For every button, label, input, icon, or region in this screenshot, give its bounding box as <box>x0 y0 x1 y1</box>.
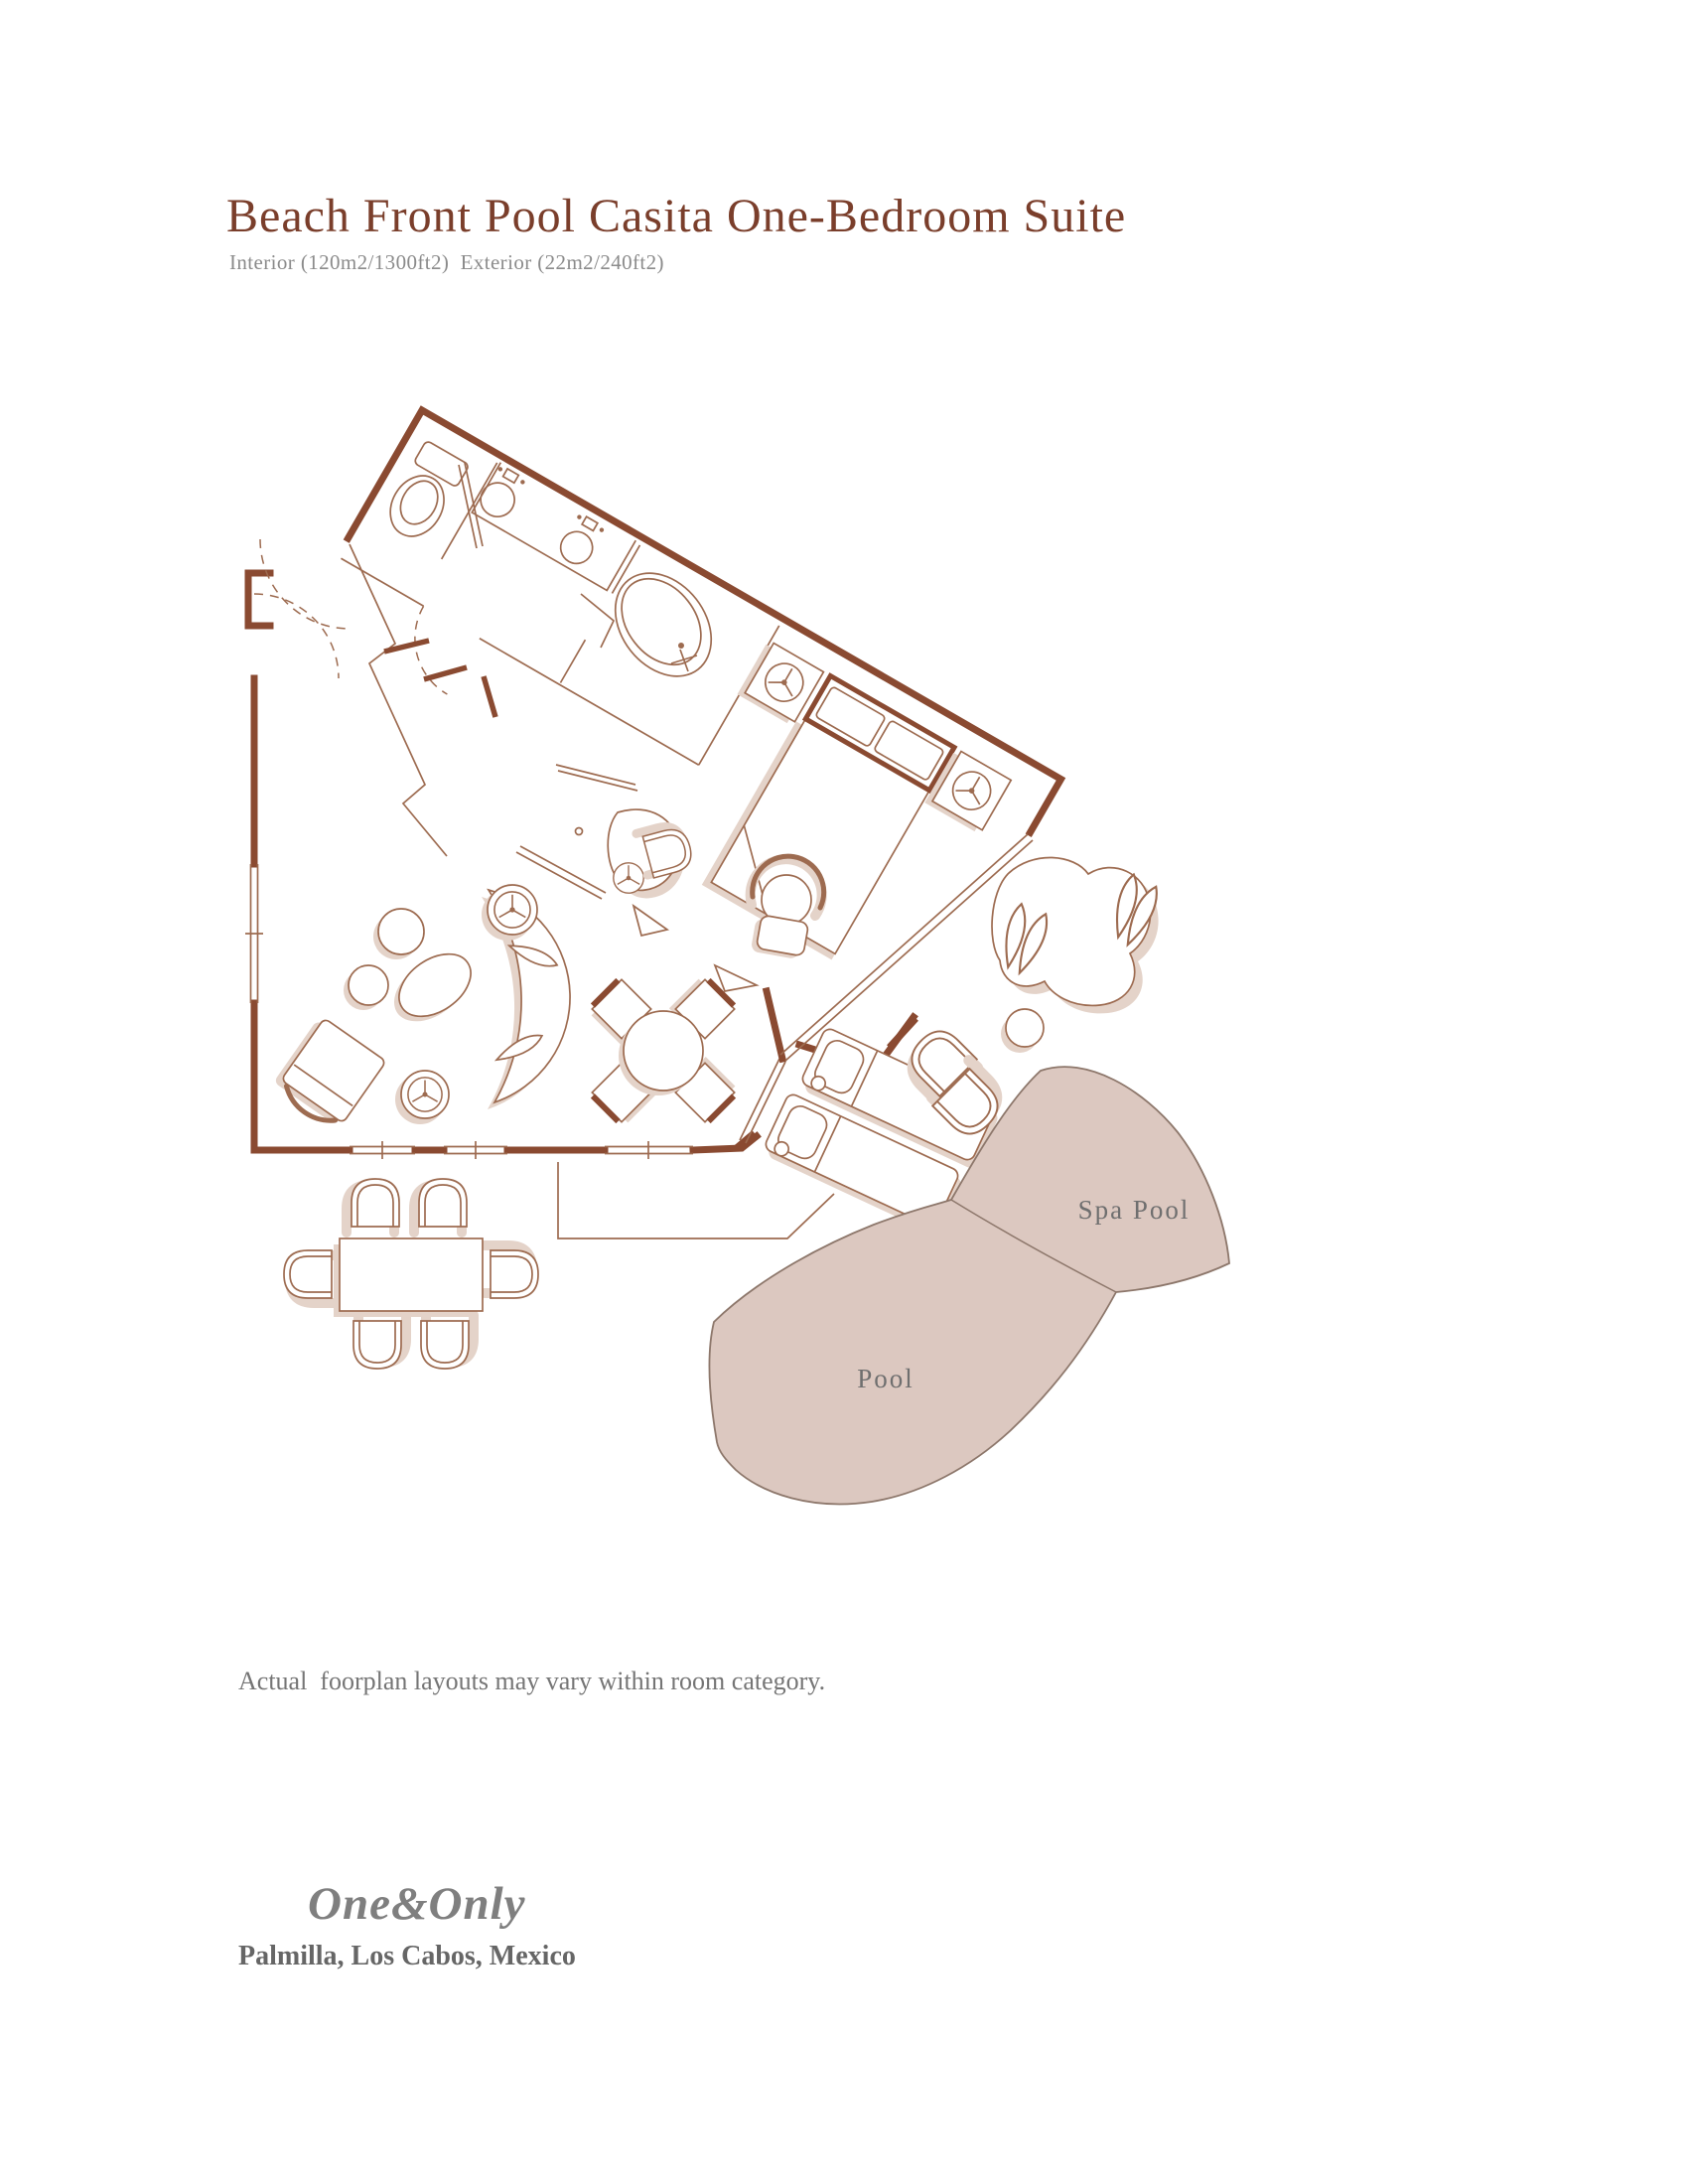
round-dining-table <box>587 974 739 1126</box>
living-room <box>269 885 739 1134</box>
floor-plan: Spa Pool Pool <box>0 0 1688 2184</box>
pool-label: Pool <box>857 1364 914 1393</box>
sofa-side-table-bottom <box>395 1071 449 1124</box>
document-page: Beach Front Pool Casita One-Bedroom Suit… <box>0 0 1688 2184</box>
brand-location: Palmilla, Los Cabos, Mexico <box>238 1941 576 1972</box>
lounge-armchair-icon <box>269 1015 385 1133</box>
entry-door-arcs <box>254 539 350 678</box>
daybed-icon <box>992 857 1164 1013</box>
disclaimer-text: Actual foorplan layouts may vary within … <box>238 1667 825 1696</box>
patio-outline <box>558 1162 834 1238</box>
outdoor-dining-set <box>284 1179 538 1369</box>
brand-logo: One&Only <box>308 1877 526 1931</box>
vanity-sinks <box>471 462 635 590</box>
bed-icon <box>702 672 954 959</box>
spa-pool-label: Spa Pool <box>1078 1195 1191 1225</box>
